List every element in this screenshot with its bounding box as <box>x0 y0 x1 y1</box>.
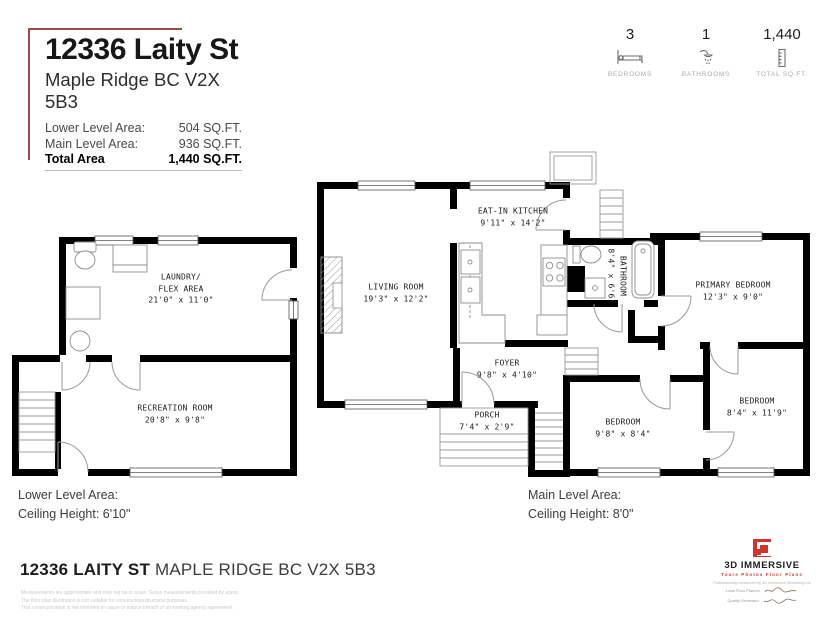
footer-address: 12336 LAITY ST MAPLE RIDGE BC V2X 5B3 <box>20 560 376 580</box>
room-dims: 20'8" x 9'8" <box>137 414 212 426</box>
room-dims: 9'11" x 14'2" <box>478 217 548 229</box>
signature-label: Lead Floor Planner <box>726 588 760 593</box>
signature-scribble <box>763 596 797 605</box>
logo-icon-notch <box>755 549 761 555</box>
room-label-bedroom-2: BEDROOM 9'8" x 8'4" <box>595 416 650 439</box>
signature-row-planner: Lead Floor Planner <box>712 586 812 595</box>
room-label-recreation: RECREATION ROOM 20'8" x 9'8" <box>137 402 212 425</box>
logo-icon <box>753 539 771 557</box>
room-label-bedroom-3: BEDROOM 8'4" x 11'9" <box>727 395 787 418</box>
disclaimer-line: Measurements are approximate and may not… <box>21 590 239 598</box>
room-label-living: LIVING ROOM 19'3" x 12'2" <box>363 281 428 304</box>
signature-row-reviewer: Quality Reviewed <box>712 596 812 605</box>
footer-address-bold: 12336 LAITY ST <box>20 560 150 579</box>
room-label-kitchen: EAT-IN KITCHEN 9'11" x 14'2" <box>478 205 548 228</box>
kitchen-fixtures <box>459 243 567 343</box>
room-dims: 8'4" x 6'6" <box>605 248 617 303</box>
room-dims: 12'3" x 9'0" <box>695 291 770 303</box>
logo-name: 3D IMMERSIVE <box>712 560 812 571</box>
lower-level-stairs <box>19 392 55 452</box>
room-label-laundry: LAUNDRY/ FLEX AREA 21'0" x 11'0" <box>148 272 213 307</box>
laundry-fixtures <box>66 242 147 351</box>
room-label-foyer: FOYER 9'8" x 4'10" <box>477 357 537 380</box>
room-name: EAT-IN KITCHEN <box>478 205 548 217</box>
room-name: LIVING ROOM <box>363 281 428 293</box>
floor-plan-page: { "header": { "address": "12336 Laity St… <box>0 0 830 622</box>
lower-level-caption: Lower Level Area: Ceiling Height: 6'10" <box>18 486 130 525</box>
company-logo: 3D IMMERSIVE Tours Photos Floor Plans Pr… <box>712 539 812 605</box>
room-label-porch: PORCH 7'4" x 2'9" <box>459 409 514 432</box>
fireplace <box>321 257 342 333</box>
room-name: FLEX AREA <box>148 283 213 295</box>
caption-area: Main Level Area: <box>528 486 634 505</box>
room-dims: 9'8" x 8'4" <box>595 428 650 440</box>
room-name: LAUNDRY/ <box>148 272 213 284</box>
floor-plan-canvas <box>0 0 830 622</box>
logo-tagline: Tours Photos Floor Plans <box>712 572 812 577</box>
caption-ceiling: Ceiling Height: 6'10" <box>18 505 130 524</box>
signature-label: Quality Reviewed <box>727 598 758 603</box>
room-dims: 21'0" x 11'0" <box>148 295 213 307</box>
caption-area: Lower Level Area: <box>18 486 130 505</box>
disclaimer-line: This communication is not intended to ca… <box>21 605 239 613</box>
signature-scribble <box>764 586 798 595</box>
room-dims: 7'4" x 2'9" <box>459 421 514 433</box>
main-level-caption: Main Level Area: Ceiling Height: 8'0" <box>528 486 634 525</box>
room-name: PORCH <box>459 409 514 421</box>
room-label-bathroom: BATHROOM 8'4" x 6'6" <box>605 248 628 303</box>
room-name: PRIMARY BEDROOM <box>695 279 770 291</box>
room-dims: 8'4" x 11'9" <box>727 407 787 419</box>
logo-measured-by: Professionally measured by 3D Immersive … <box>712 580 812 585</box>
disclaimer-line: The floor plan illustration is not suita… <box>21 598 239 606</box>
footer-address-rest: MAPLE RIDGE BC V2X 5B3 <box>150 560 376 579</box>
room-dims: 19'3" x 12'2" <box>363 293 428 305</box>
room-dims: 9'8" x 4'10" <box>477 369 537 381</box>
room-label-primary-bedroom: PRIMARY BEDROOM 12'3" x 9'0" <box>695 279 770 302</box>
caption-ceiling: Ceiling Height: 8'0" <box>528 505 634 524</box>
room-name: BATHROOM <box>617 248 629 303</box>
room-name: BEDROOM <box>595 416 650 428</box>
room-name: FOYER <box>477 357 537 369</box>
disclaimer-text: Measurements are approximate and may not… <box>21 590 239 613</box>
room-name: RECREATION ROOM <box>137 402 212 414</box>
room-name: BEDROOM <box>727 395 787 407</box>
